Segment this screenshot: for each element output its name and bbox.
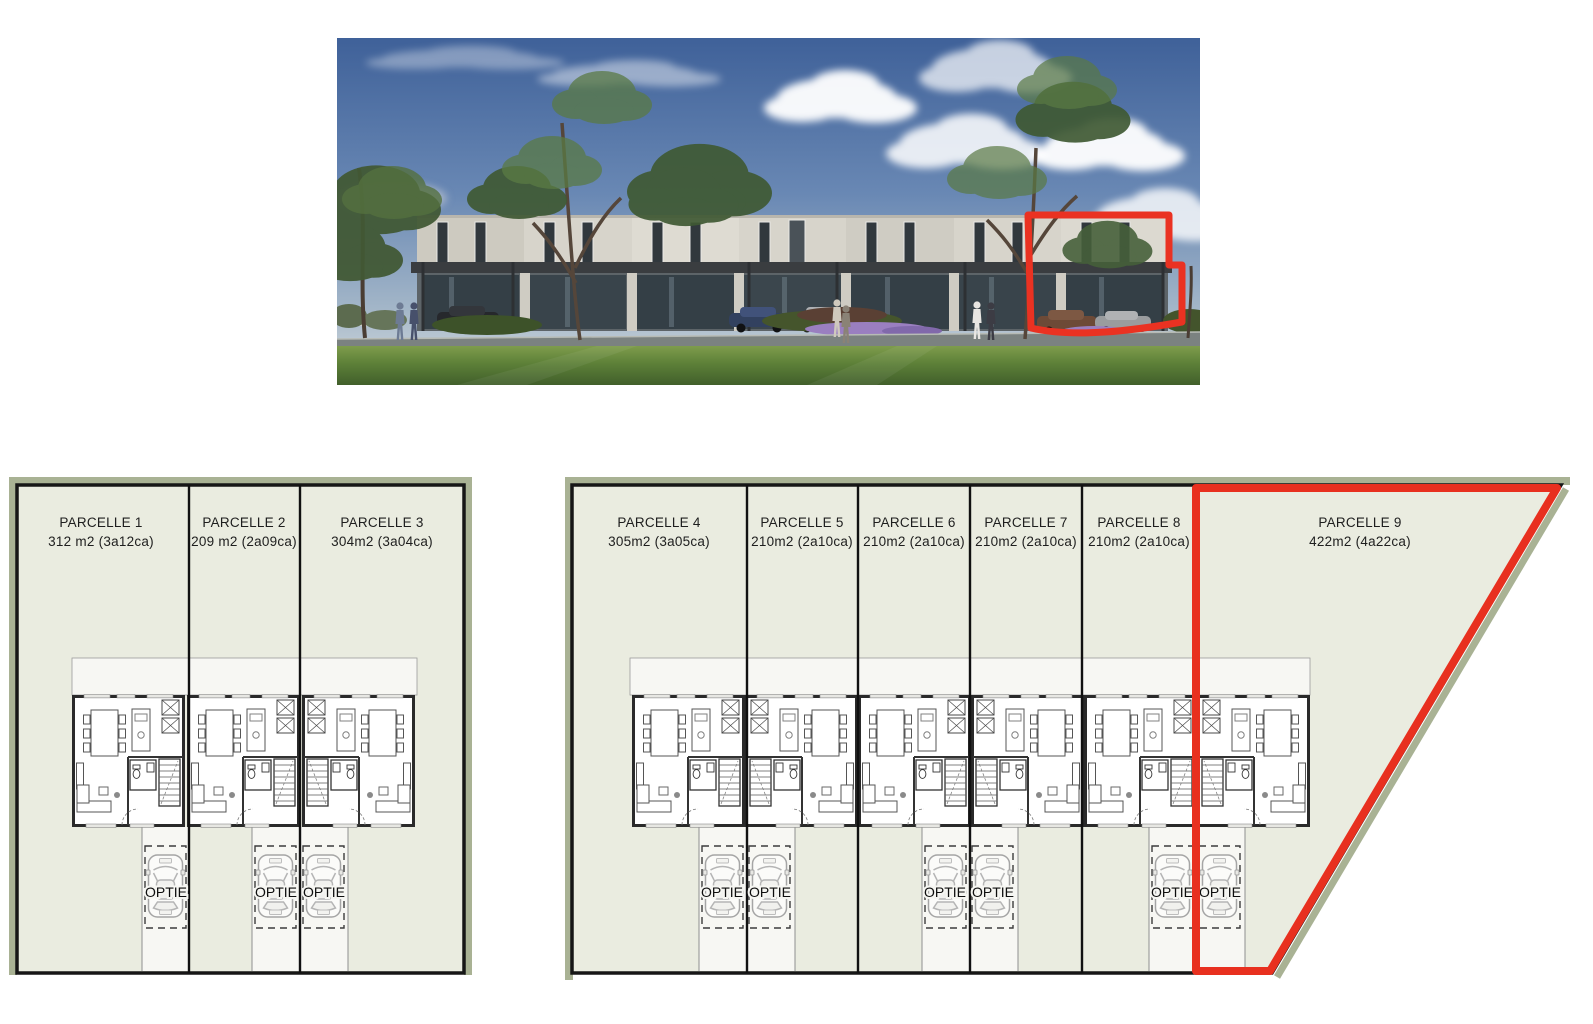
site-plan-right: OPTIE OPTIE OPTIE OPTIE OPTIE OPTIE PARC… <box>565 477 1570 980</box>
house-floorplan-7 <box>973 695 1083 828</box>
house-floorplan-2 <box>189 695 299 828</box>
optie-label: OPTIE <box>1199 884 1241 900</box>
optie-label: OPTIE <box>972 884 1014 900</box>
optie-label: OPTIE <box>255 884 297 900</box>
house-floorplan-4 <box>634 695 744 828</box>
optie-label: OPTIE <box>749 884 791 900</box>
house-floorplan-8 <box>1086 695 1196 828</box>
site-plan-left: OPTIE OPTIE OPTIE PARCELLE 1 312 m2 (3a1… <box>9 477 472 975</box>
parcel-7-name: PARCELLE 7 <box>984 515 1067 530</box>
house-floorplan-6 <box>860 695 970 828</box>
parcel-5-name: PARCELLE 5 <box>760 515 843 530</box>
parcel-9-name: PARCELLE 9 <box>1318 515 1401 530</box>
optie-label: OPTIE <box>701 884 743 900</box>
parcel-3-area: 304m2 (3a04ca) <box>331 534 433 549</box>
brochure-page: OPTIE OPTIE OPTIE PARCELLE 1 312 m2 (3a1… <box>0 0 1593 1024</box>
parcel-1-name: PARCELLE 1 <box>59 515 142 530</box>
parcel-6-area: 210m2 (2a10ca) <box>863 534 965 549</box>
house-floorplan-9 <box>1199 695 1309 828</box>
street-photo <box>293 38 1462 385</box>
carport-canopy-band <box>411 262 1172 273</box>
optie-label: OPTIE <box>145 884 187 900</box>
optie-label: OPTIE <box>1151 884 1193 900</box>
parcel-2-name: PARCELLE 2 <box>202 515 285 530</box>
house-floorplan-5 <box>747 695 857 828</box>
optie-label: OPTIE <box>924 884 966 900</box>
parcel-7-area: 210m2 (2a10ca) <box>975 534 1077 549</box>
parcel-4-name: PARCELLE 4 <box>617 515 701 530</box>
house-floorplan-3 <box>304 695 414 828</box>
parcel-6-name: PARCELLE 6 <box>872 515 955 530</box>
brochure-graphic: OPTIE OPTIE OPTIE PARCELLE 1 312 m2 (3a1… <box>0 0 1593 1024</box>
lawn <box>337 346 1200 385</box>
parcel-9-area: 422m2 (4a22ca) <box>1309 534 1411 549</box>
parcel-1-area: 312 m2 (3a12ca) <box>48 534 154 549</box>
parcel-5-area: 210m2 (2a10ca) <box>751 534 853 549</box>
parcel-8-name: PARCELLE 8 <box>1097 515 1180 530</box>
house-floorplan-1 <box>74 695 184 828</box>
parcel-4-area: 305m2 (3a05ca) <box>608 534 710 549</box>
front-yards <box>72 658 417 695</box>
parcel-8-area: 210m2 (2a10ca) <box>1088 534 1190 549</box>
parcel-3-name: PARCELLE 3 <box>340 515 423 530</box>
parcel-2-area: 209 m2 (2a09ca) <box>191 534 297 549</box>
optie-label: OPTIE <box>303 884 345 900</box>
